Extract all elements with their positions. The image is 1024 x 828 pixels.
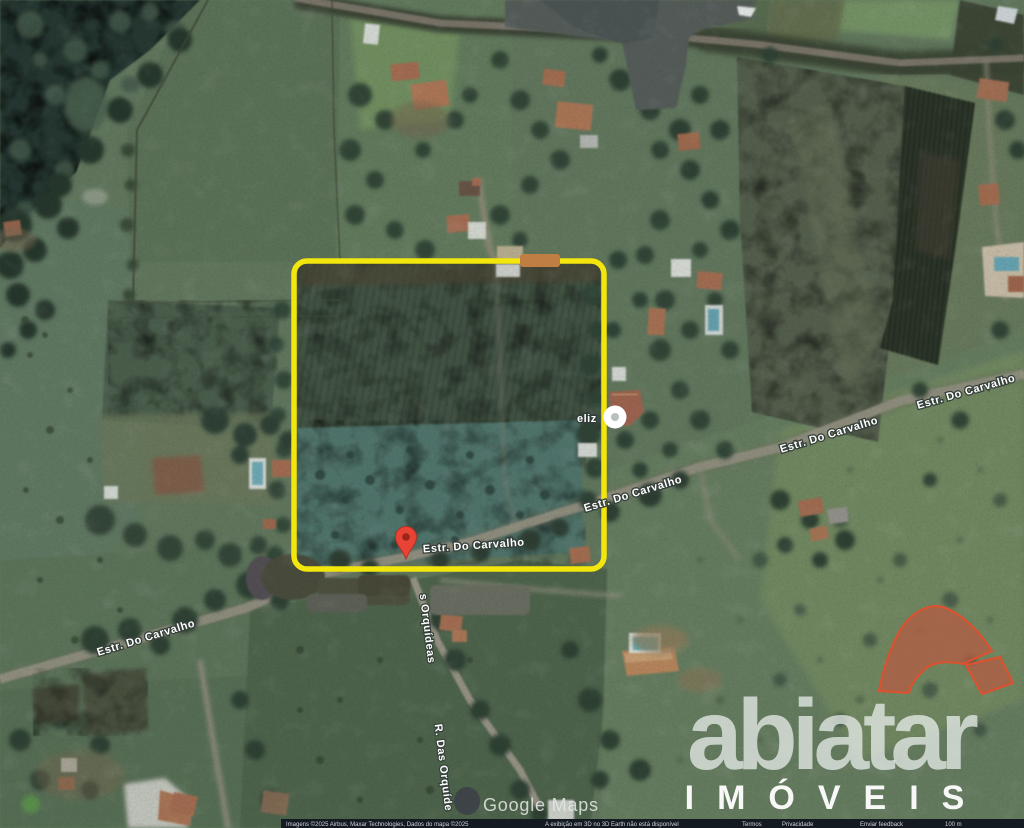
- svg-text:eliz: eliz: [577, 413, 597, 425]
- svg-text:Imagens ©2025 Airbus, Maxar Te: Imagens ©2025 Airbus, Maxar Technologies…: [286, 821, 469, 828]
- svg-text:Termos: Termos: [742, 822, 762, 828]
- svg-text:Enviar feedback: Enviar feedback: [860, 822, 904, 828]
- svg-text:IMÓVEIS: IMÓVEIS: [685, 779, 988, 817]
- svg-text:Privacidade: Privacidade: [782, 822, 814, 828]
- svg-text:Google Maps: Google Maps: [483, 795, 599, 815]
- svg-text:A exibição em 3D no 3D Earth n: A exibição em 3D no 3D Earth não está di…: [545, 822, 679, 828]
- svg-text:abiatar: abiatar: [687, 679, 978, 791]
- svg-text:100 m: 100 m: [945, 822, 962, 828]
